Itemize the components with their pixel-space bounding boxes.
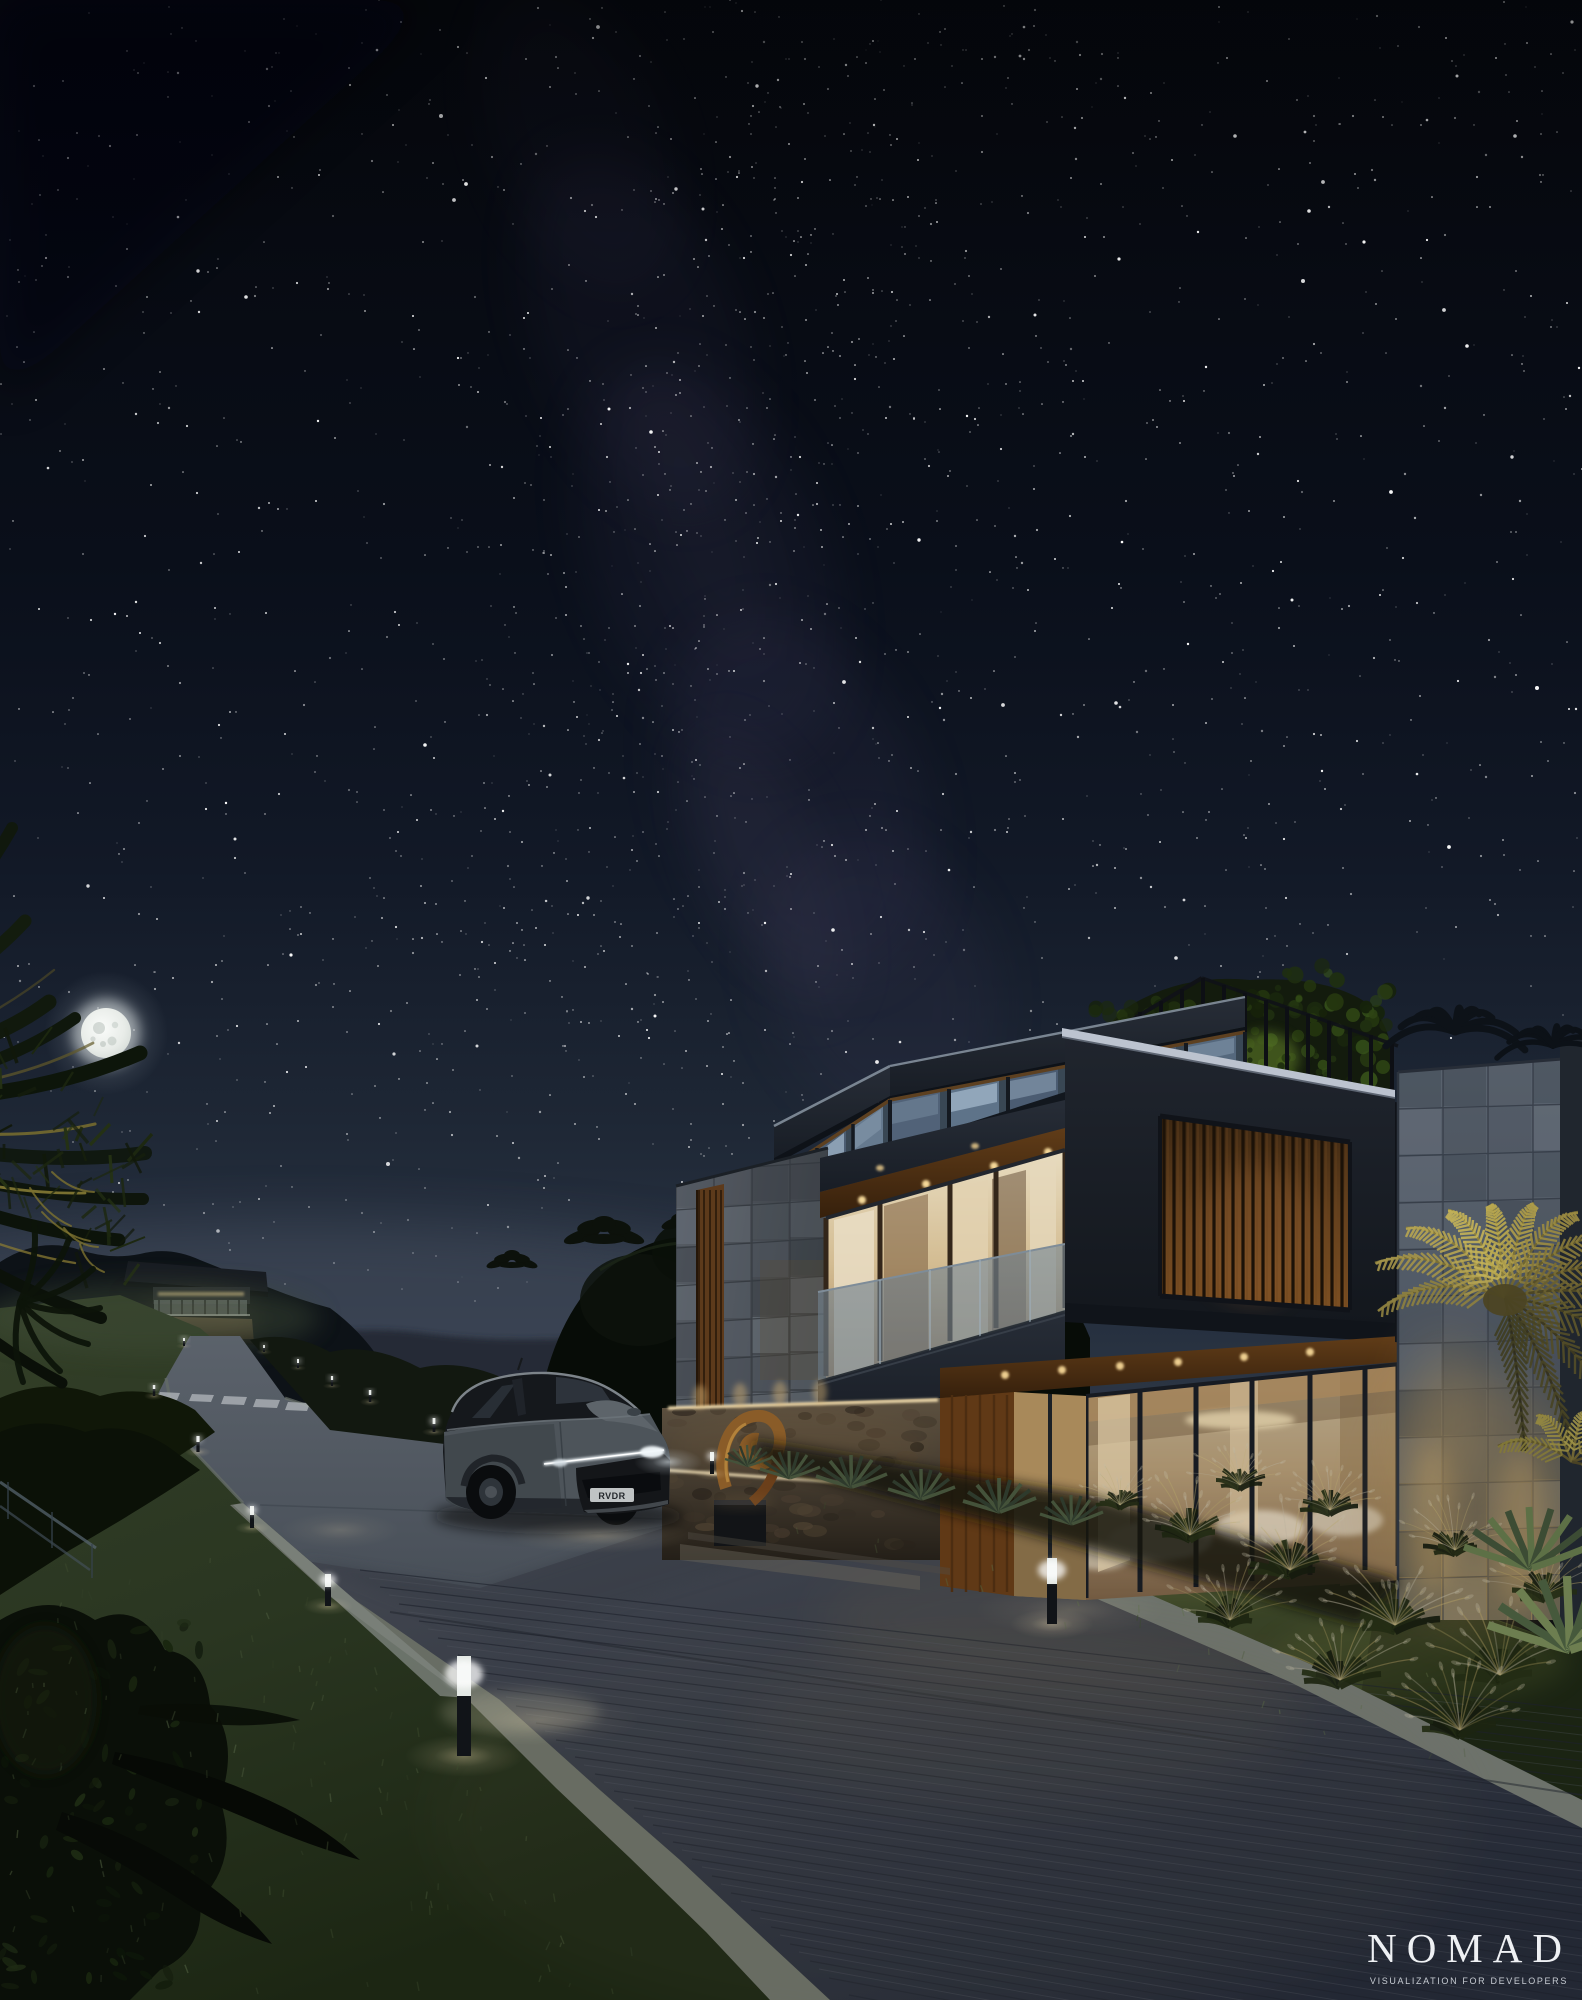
svg-text:VISUALIZATION FOR DEVELOPERS: VISUALIZATION FOR DEVELOPERS <box>1370 1976 1568 1986</box>
svg-text:RVDR: RVDR <box>598 1491 625 1501</box>
svg-text:NOMAD: NOMAD <box>1367 1925 1572 1971</box>
